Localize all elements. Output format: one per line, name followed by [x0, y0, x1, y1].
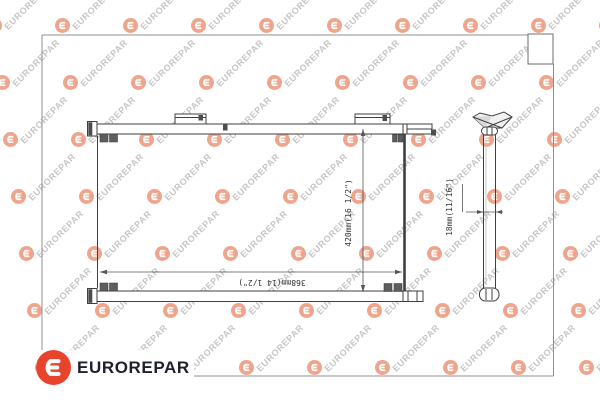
dimension-width: 368mm(14 1/2"): [100, 270, 402, 287]
depth-label: 18mm(11/16"): [445, 178, 454, 236]
height-label: 420mm(16 1/2"): [344, 179, 353, 246]
condenser-side-view: [473, 112, 512, 301]
eurorepar-logo-icon: [36, 350, 71, 385]
condenser-front-view: [88, 114, 437, 304]
bottom-cap: [480, 288, 500, 301]
collar: [482, 127, 498, 135]
catalog-part-image: EUROREPAREUROREPAREUROREPAREUROREPAREURO…: [0, 0, 600, 400]
brand-name: EUROREPAR: [77, 358, 190, 378]
frame-corner-box: [528, 34, 553, 64]
bottom-right-fitting: [403, 291, 423, 302]
dimension-height: 420mm(16 1/2"): [344, 129, 365, 292]
technical-drawing: 368mm(14 1/2") 420mm(16 1/2") 18mm(11/16…: [0, 0, 600, 400]
dimension-depth: 18mm(11/16"): [445, 178, 503, 236]
width-label: 368mm(14 1/2"): [238, 278, 305, 287]
top-bar-tab: [223, 124, 228, 131]
brand-logo: EUROREPAR: [36, 350, 194, 385]
mounting-bracket-left: [175, 114, 206, 124]
drawing-frame: [42, 34, 554, 376]
mounting-bracket-right: [355, 114, 390, 124]
